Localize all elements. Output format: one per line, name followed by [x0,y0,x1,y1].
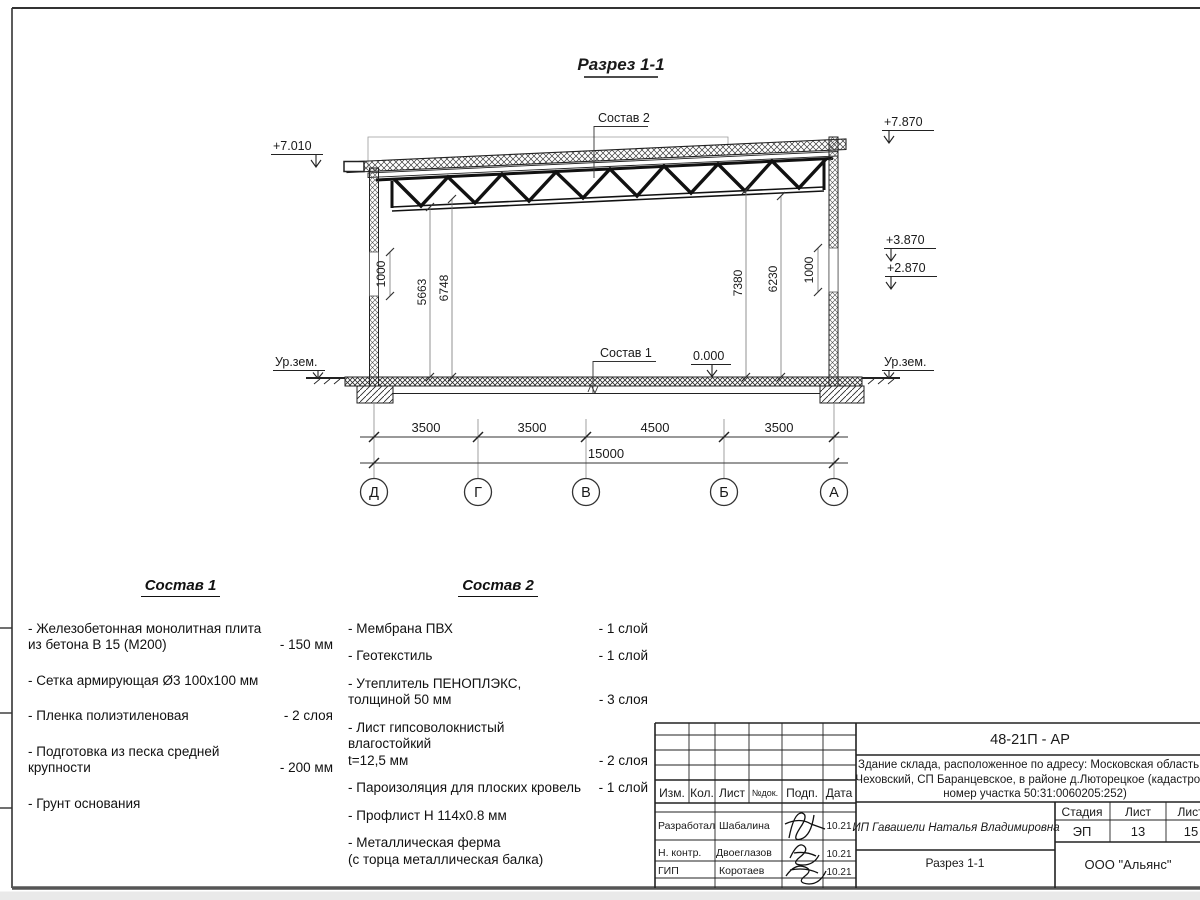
svg-text:Состав 2: Состав 2 [598,111,650,125]
elevation-left-top: +7.010 [271,139,323,167]
svg-text:+3.870: +3.870 [886,233,925,247]
dim-15000-total: 15000 [588,446,624,461]
list-item: - Геотекстиль - 1 слой [348,648,648,665]
doc-code: 48-21П - АР [990,732,1070,748]
row-name-2: Коротаев [719,865,765,877]
svg-text:Ур.зем.: Ур.зем. [275,355,317,369]
callout-sostav1: Состав 1 [588,346,656,394]
wall-right-opening [829,248,838,292]
svg-text:+7.010: +7.010 [273,139,312,153]
floor [306,377,900,403]
axis-label-d: Д [369,485,379,501]
svg-text:0.000: 0.000 [693,349,724,363]
dim-3500-ba: 3500 [765,420,794,435]
row-role-2: ГИП [658,865,679,877]
view-title-text: Разрез 1-1 [577,55,664,74]
signature-gip [786,866,826,884]
sostav1-title: Состав 1 [141,578,221,597]
row-date-2: 10.21 [826,867,851,878]
ground-level-right: Ур.зем. [882,355,934,379]
elevation-zero: 0.000 [691,349,731,377]
list-item: - Железобетонная монолитная плита из бет… [28,621,333,654]
dim-1000-right: 1000 [802,256,816,283]
address-line-2: Чеховский, СП Баранцевское, в районе д.Л… [855,774,1200,786]
signature-nkontr [790,845,819,865]
dim-4500-vb: 4500 [641,420,670,435]
list-item: - Сетка армирующая Ø3 100х100 мм [28,673,333,690]
axis-label-b: Б [719,485,729,501]
row-date-0: 10.21 [826,821,851,832]
axis-bubbles: Д Г В Б А [361,479,848,506]
project-address: Здание склада, расположенное по адресу: … [855,759,1200,800]
sostav1-list: Состав 1 - Железобетонная монолитная пли… [28,578,333,831]
dim-3500-gv: 3500 [518,420,547,435]
list-item: - Подготовка из песка средней крупности … [28,744,333,777]
list-item: - Профлист Н 114х0.8 мм [348,808,648,825]
axis-dimensions: 3500 3500 4500 3500 15000 Д Г В Б А [360,404,848,506]
view-title: Разрез 1-1 [577,55,664,77]
ground-level-left: Ур.зем. [273,355,325,379]
sheets-value: 15 [1184,824,1198,839]
dim-6748: 6748 [437,274,451,301]
row-name-1: Двоеглазов [716,847,772,859]
title-block: Изм. Кол. Лист №док. Подп. Дата Разработ… [655,723,1200,888]
dim-6230: 6230 [766,265,780,292]
list-item: - Лист гипсоволокнистый влагостойкий t=1… [348,720,648,770]
roof [344,139,846,178]
dim-1000-left: 1000 [374,260,388,287]
drawing-sheet: { "drawing": { "title": "Разрез 1-1", "e… [0,0,1200,900]
sostav2-list: Состав 2 - Мембрана ПВХ - 1 слой - Геоте… [348,578,648,879]
svg-text:Ур.зем.: Ур.зем. [884,355,926,369]
axis-label-g: Г [474,485,482,501]
col-kol: Кол. [690,786,714,800]
axis-label-a: А [829,485,839,501]
sheets-label: Листов [1178,805,1200,819]
elevation-right-lower: +2.870 [885,261,937,289]
signature-razrabotal [785,813,825,840]
company-name: ООО "Альянс" [1085,857,1172,872]
list-item: - Утеплитель ПЕНОПЛЭКС, толщиной 50 мм -… [348,676,648,709]
sheet-label: Лист [1125,805,1152,819]
elevation-right-top: +7.870 [882,115,934,143]
stage-label: Стадия [1062,805,1103,819]
sheet-value: 13 [1131,824,1145,839]
col-list: Лист [719,786,746,800]
row-role-1: Н. контр. [658,847,701,859]
svg-text:Состав 1: Состав 1 [600,346,652,360]
svg-text:+2.870: +2.870 [887,261,926,275]
col-podp: Подп. [786,786,818,800]
stage-value: ЭП [1073,824,1092,839]
row-role-0: Разработал [658,820,715,832]
signatures [785,813,826,884]
address-line-3: номер участка 50:31:0060205:252) [943,788,1127,800]
list-item: - Грунт основания [28,796,333,813]
col-data: Дата [826,786,853,800]
address-line-1: Здание склада, расположенное по адресу: … [858,759,1200,771]
dim-3500-dg: 3500 [412,420,441,435]
list-item: - Металлическая ферма (с торца металличе… [348,835,648,868]
vertical-dimension-labels: 5663 6748 7380 6230 1000 1000 [374,256,816,305]
client-name: ИП Гавашели Наталья Владимировна [852,822,1059,834]
svg-text:+7.870: +7.870 [884,115,923,129]
stage-sheet-headers: Стадия Лист Листов [1062,805,1200,819]
axis-label-v: В [581,485,591,501]
eave-cap [344,162,364,172]
sostav2-title: Состав 2 [458,578,538,597]
foundation-left [357,386,393,403]
dim-7380: 7380 [731,269,745,296]
col-izm: Изм. [659,786,685,800]
list-item: - Пароизоляция для плоских кровель - 1 с… [348,780,648,797]
row-name-0: Шабалина [719,820,770,832]
dim-5663: 5663 [415,278,429,305]
elevation-right-upper: +3.870 [884,233,936,261]
list-item: - Пленка полиэтиленовая - 2 слоя [28,708,333,725]
list-item: - Мембрана ПВХ - 1 слой [348,621,648,638]
stage-sheet-values: ЭП 13 15 [1073,824,1199,839]
section-name: Разрез 1-1 [926,856,985,870]
row-date-1: 10.21 [826,849,851,860]
col-ndok: №док. [752,788,778,798]
title-block-headers: Изм. Кол. Лист №док. Подп. Дата [659,786,852,800]
foundation-right [820,386,864,403]
